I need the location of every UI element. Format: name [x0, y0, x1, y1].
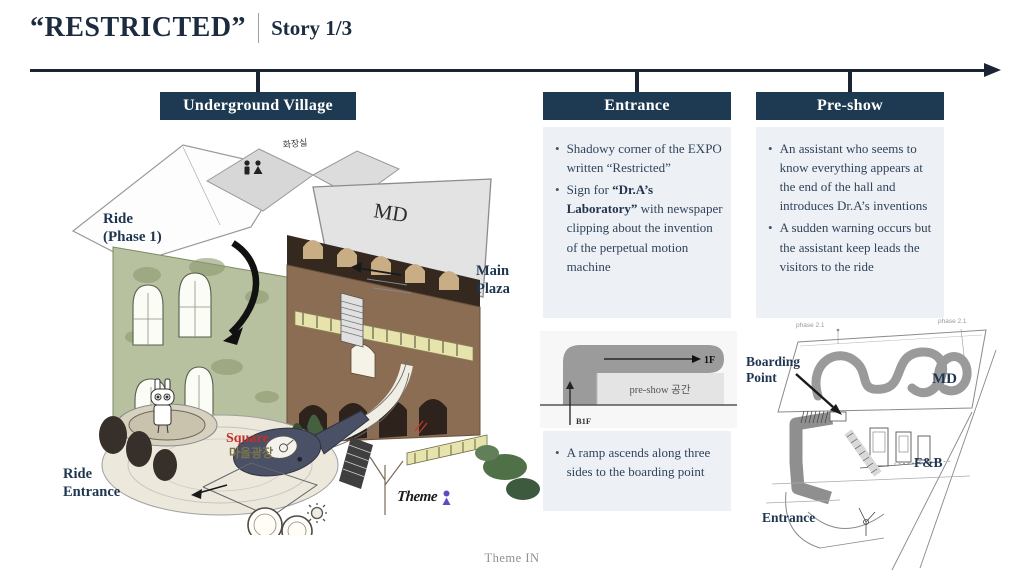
ride-entrance-label: RideEntrance	[63, 466, 120, 501]
title-restricted: “RESTRICTED”	[30, 12, 246, 44]
timeline-arrow-icon	[984, 63, 1001, 77]
village-sketch: 화장실 MD	[55, 135, 545, 535]
ramp-bullet-1: • A ramp ascends along three sides to th…	[555, 443, 723, 481]
timeline-tick-preshow	[848, 71, 852, 92]
floor-1f-label: 1F	[704, 355, 715, 366]
bullet-marker: •	[555, 443, 560, 481]
revolving-door-icon	[859, 508, 875, 536]
plan-fnb-label: F&B	[914, 455, 943, 471]
title-divider	[258, 13, 259, 43]
preshow-panel: • An assistant who seems to know everyth…	[756, 127, 944, 318]
entrance-bullet-2-text: Sign for “Dr.A’s Laboratory” with newspa…	[567, 180, 723, 276]
timeline-line	[30, 69, 986, 72]
main-plaza-label: MainPlaza	[476, 263, 510, 298]
entrance-bullet-list: • Shadowy corner of the EXPO written “Re…	[543, 127, 731, 276]
entrance-bullet-1-text: Shadowy corner of the EXPO written “Rest…	[567, 139, 723, 177]
preshow-bullet-2: • A sudden warning occurs but the assist…	[768, 218, 936, 275]
timeline-tick-entrance	[635, 71, 639, 92]
timeline-tick-village	[256, 71, 260, 92]
entrance-bullet-2: • Sign for “Dr.A’s Laboratory” with news…	[555, 180, 723, 276]
page-title: “RESTRICTED” Story 1/3	[30, 12, 352, 44]
footer-brand: Theme IN	[0, 551, 1024, 566]
bullet-marker: •	[555, 139, 560, 177]
plan-thick-wall	[796, 418, 832, 498]
ramp-bullet-1-text: A ramp ascends along three sides to the …	[567, 443, 723, 481]
person-icon	[441, 490, 452, 506]
gear-icon	[307, 503, 327, 523]
restroom-kr-label: 화장실	[282, 137, 308, 150]
ride-phase-label: Ride(Phase 1)	[103, 210, 162, 247]
title-story-number: Story 1/3	[271, 16, 352, 41]
slide-root: “RESTRICTED” Story 1/3 Underground Villa…	[0, 0, 1024, 576]
bullet-marker: •	[555, 180, 560, 276]
bullet-marker: •	[768, 218, 773, 275]
preshow-bullet-2-text: A sudden warning occurs but the assistan…	[780, 218, 936, 275]
ramp-bullet-list: • A ramp ascends along three sides to th…	[543, 431, 731, 481]
entrance-bullet-1: • Shadowy corner of the EXPO written “Re…	[555, 139, 723, 177]
section-header-preshow: Pre-show	[756, 92, 944, 120]
plan-entrance-label: Entrance	[762, 510, 815, 526]
preshow-bullet-1-text: An assistant who seems to know everythin…	[780, 139, 936, 215]
ramp-diagram-sketch: 1F pre-show 공간 B1F	[540, 331, 737, 428]
square-kr-label: 마을광장	[229, 446, 273, 461]
bullet-marker: •	[768, 139, 773, 215]
ramp-caption-panel: • A ramp ascends along three sides to th…	[543, 431, 731, 511]
plan-phase-annotation-right: phase 2.1	[938, 318, 967, 325]
plan-phase-annotation-left: phase 2.1	[796, 322, 825, 329]
preshow-ramp-diagram: 1F pre-show 공간 B1F	[540, 331, 737, 428]
plan-md-label: MD	[932, 370, 957, 388]
theme-logo: Theme	[397, 489, 452, 506]
section-header-underground-village: Underground Village	[160, 92, 356, 120]
square-label: Square	[226, 430, 269, 447]
boarding-point-label: BoardingPoint	[746, 354, 800, 387]
preshow-bullet-1: • An assistant who seems to know everyth…	[768, 139, 936, 215]
preshow-bullet-list: • An assistant who seems to know everyth…	[756, 127, 944, 276]
theme-logo-text: Theme	[396, 489, 437, 506]
entrance-panel: • Shadowy corner of the EXPO written “Re…	[543, 127, 731, 318]
section-header-entrance: Entrance	[543, 92, 731, 120]
floor-b1f-label: B1F	[576, 416, 591, 426]
preshow-area-label: pre-show 공간	[629, 384, 690, 396]
village-illustration: 화장실 MD	[55, 135, 545, 535]
